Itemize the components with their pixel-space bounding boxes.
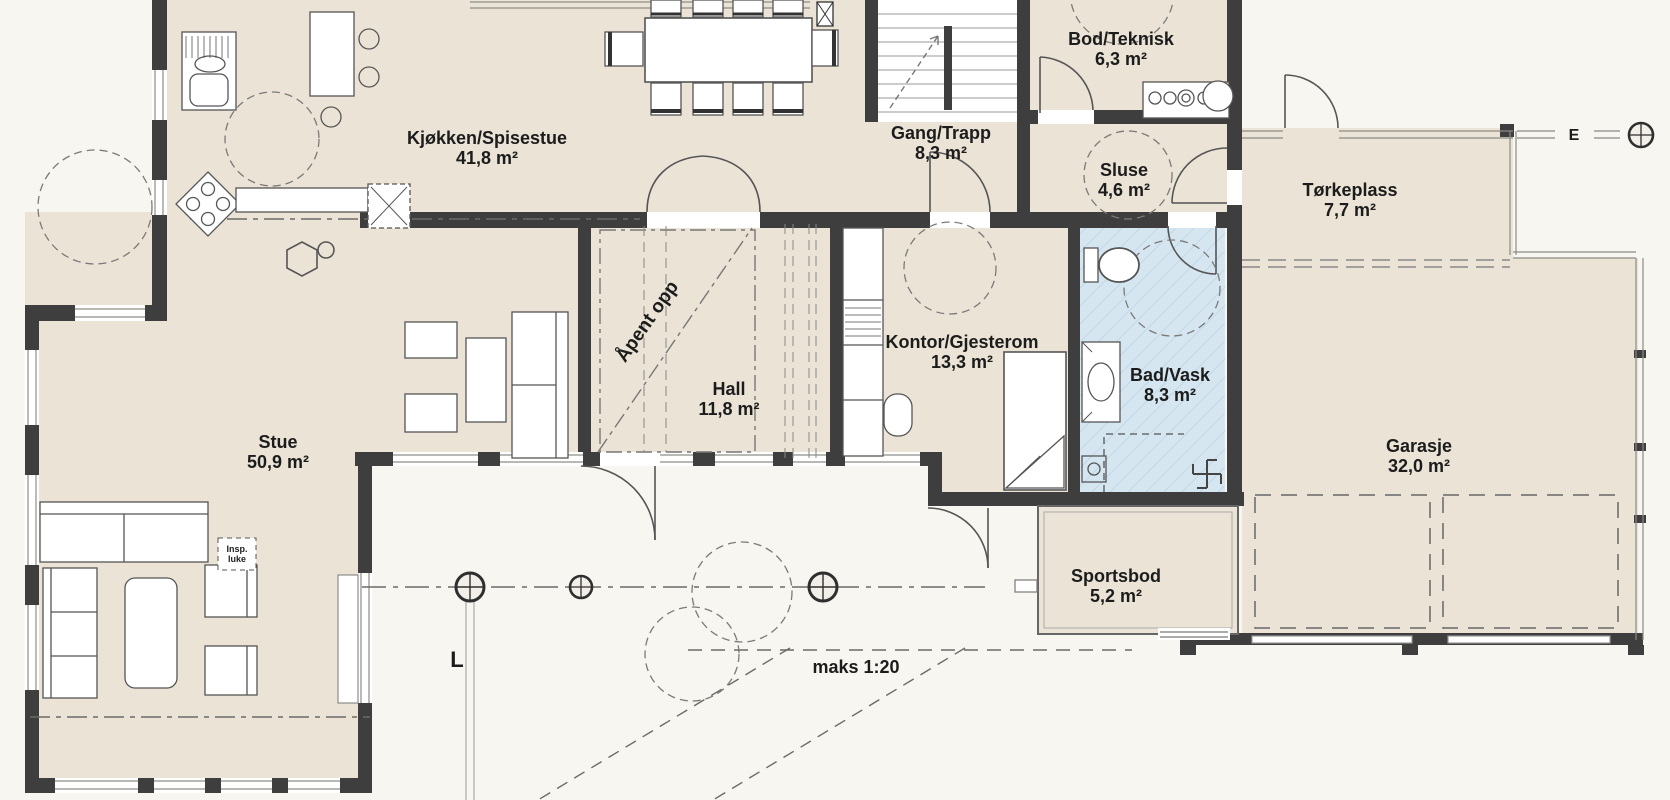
grid-label-l: L (450, 649, 463, 671)
grid-label-e: E (1569, 128, 1580, 144)
room-label-hall: Hall11,8 m² (698, 379, 759, 419)
floor-plan: Kjøkken/Spisestue41,8 m² Gang/Trapp8,3 m… (0, 0, 1670, 800)
room-label-garasje: Garasje32,0 m² (1386, 436, 1452, 476)
room-label-stue: Stue50,9 m² (247, 432, 309, 472)
room-label-torkeplass: Tørkeplass7,7 m² (1302, 180, 1397, 220)
annotation-scale-note: maks 1:20 (812, 657, 899, 677)
floor-plan-page: { "plan": { "rooms": [ {"id":"kjokken-sp… (0, 0, 1670, 800)
room-label-kjokken-spisestue: Kjøkken/Spisestue41,8 m² (407, 128, 567, 168)
room-label-sluse: Sluse4,6 m² (1098, 160, 1150, 200)
room-label-kontor-gjesterom: Kontor/Gjesterom13,3 m² (885, 332, 1038, 372)
annotation-inspection-hatch: Insp. luke (226, 544, 247, 564)
room-label-gang-trapp: Gang/Trapp8,3 m² (891, 123, 991, 163)
room-label-sportsbod: Sportsbod5,2 m² (1071, 566, 1161, 606)
floor-plan-drawing (0, 0, 1670, 800)
room-label-bad-vask: Bad/Vask8,3 m² (1130, 365, 1210, 405)
room-label-bod-teknisk: Bod/Teknisk6,3 m² (1068, 29, 1174, 69)
